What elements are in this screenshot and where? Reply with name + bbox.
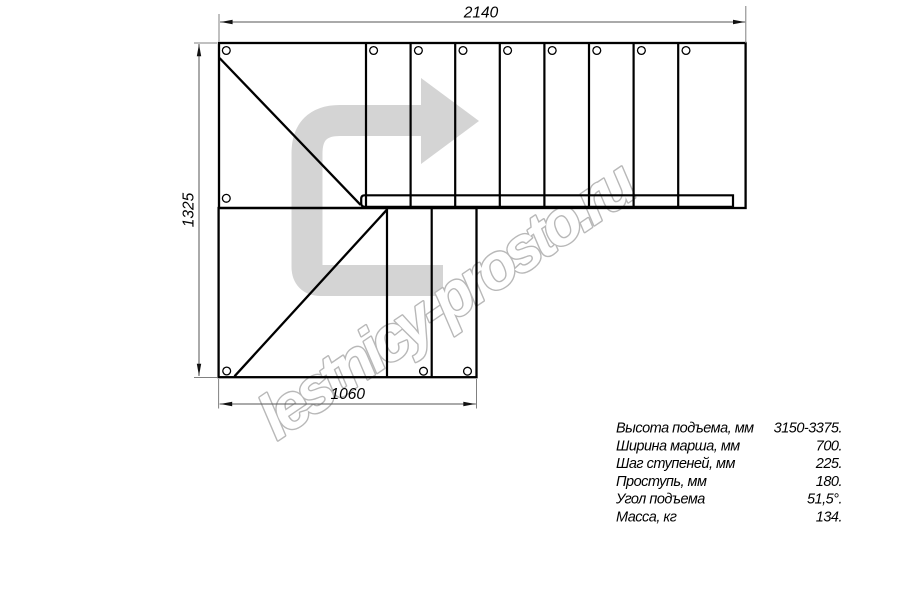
svg-text:1060: 1060 (331, 386, 366, 403)
svg-text:Проступь, мм: Проступь, мм (616, 474, 707, 490)
svg-text:2140: 2140 (463, 5, 499, 22)
svg-text:225.: 225. (815, 456, 842, 472)
svg-text:Ширина марша, мм: Ширина марша, мм (616, 438, 740, 454)
svg-text:1325: 1325 (181, 192, 198, 227)
svg-text:51,5°.: 51,5°. (807, 492, 842, 508)
svg-text:Угол подъема: Угол подъема (615, 492, 705, 508)
svg-text:Шаг ступеней, мм: Шаг ступеней, мм (616, 456, 735, 472)
svg-text:180.: 180. (816, 474, 842, 490)
svg-text:Высота подъема, мм: Высота подъема, мм (616, 421, 754, 437)
svg-text:700.: 700. (816, 438, 842, 454)
svg-text:3150-3375.: 3150-3375. (774, 421, 842, 437)
svg-text:Масса, кг: Масса, кг (616, 510, 677, 526)
svg-text:134.: 134. (816, 510, 842, 526)
